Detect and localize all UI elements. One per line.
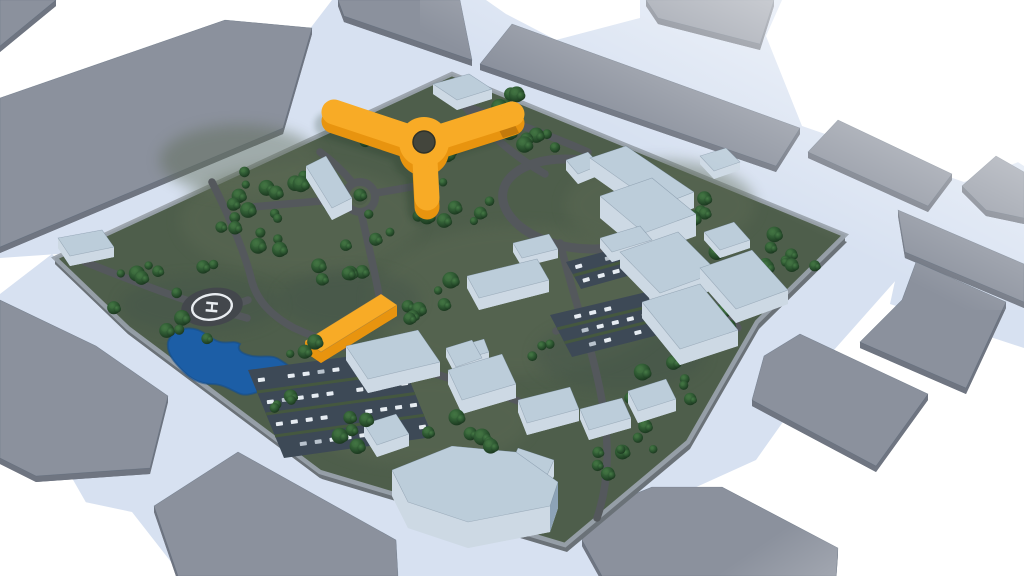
tree <box>174 324 184 334</box>
tree <box>144 261 152 269</box>
tree <box>171 288 182 299</box>
tree <box>239 167 250 178</box>
fade-bottom-right <box>680 340 1024 576</box>
tree <box>117 269 125 277</box>
tree <box>386 228 395 237</box>
tree <box>649 445 657 453</box>
tree <box>255 228 265 238</box>
tree <box>633 433 643 443</box>
tree <box>287 395 296 404</box>
fade-top-right <box>420 0 1024 310</box>
tree <box>537 341 546 350</box>
tree <box>270 403 280 413</box>
site-model-stage: H <box>0 0 1024 576</box>
tree <box>286 350 294 358</box>
site-model-canvas: H <box>0 0 1024 576</box>
tree <box>364 209 373 218</box>
tree <box>616 445 625 454</box>
tree <box>242 181 250 189</box>
helipad-h-marking: H <box>201 300 221 314</box>
tree <box>527 351 537 361</box>
tree <box>545 340 554 349</box>
tree <box>273 214 282 223</box>
